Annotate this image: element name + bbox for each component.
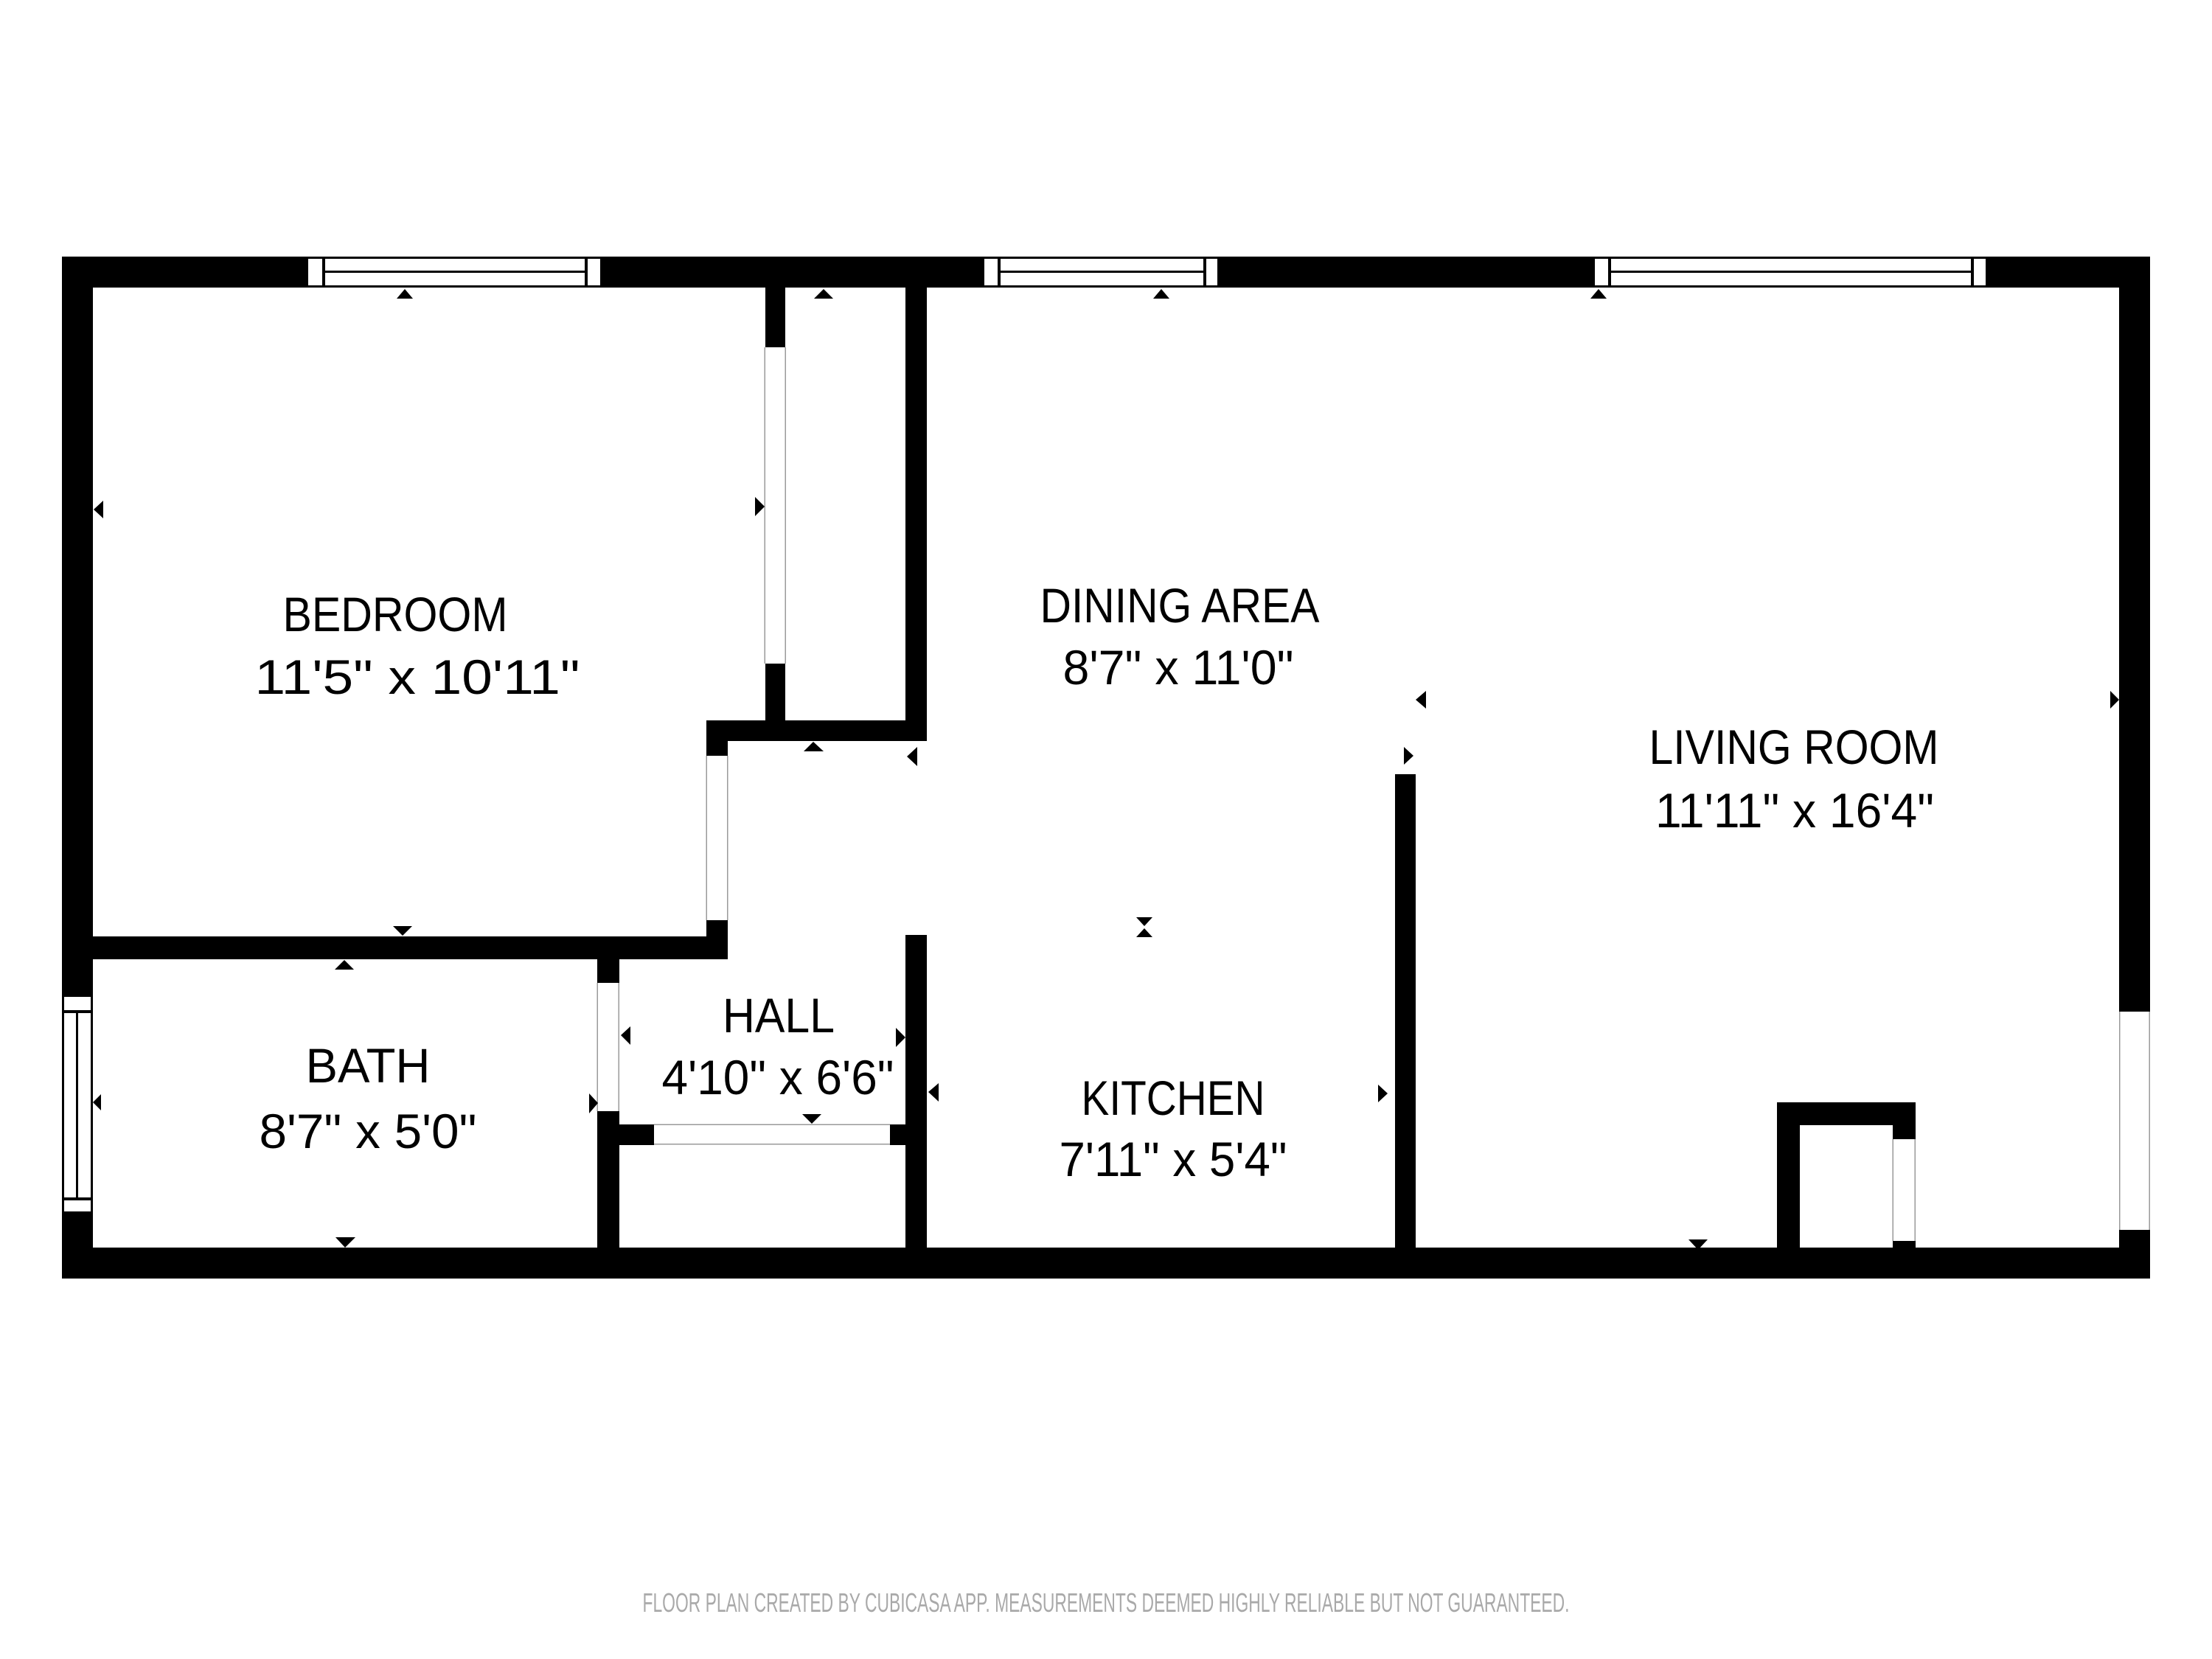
svg-text:HALL: HALL [723,988,835,1043]
svg-text:BATH: BATH [306,1038,431,1093]
svg-text:LIVING ROOM: LIVING ROOM [1649,720,1939,774]
svg-text:11'11" x 16'4": 11'11" x 16'4" [1655,783,1934,838]
svg-text:FLOOR PLAN CREATED BY CUBICASA: FLOOR PLAN CREATED BY CUBICASA APP. MEAS… [643,1587,1570,1618]
svg-text:4'10" x 6'6": 4'10" x 6'6" [662,1050,894,1105]
svg-text:7'11" x 5'4": 7'11" x 5'4" [1060,1132,1287,1186]
svg-text:11'5" x 10'11": 11'5" x 10'11" [255,650,580,704]
svg-text:8'7" x 5'0": 8'7" x 5'0" [260,1104,477,1158]
svg-text:DINING AREA: DINING AREA [1040,578,1320,633]
svg-text:BEDROOM: BEDROOM [283,587,508,641]
svg-text:KITCHEN: KITCHEN [1082,1071,1265,1125]
svg-text:8'7" x 11'0": 8'7" x 11'0" [1063,640,1294,695]
